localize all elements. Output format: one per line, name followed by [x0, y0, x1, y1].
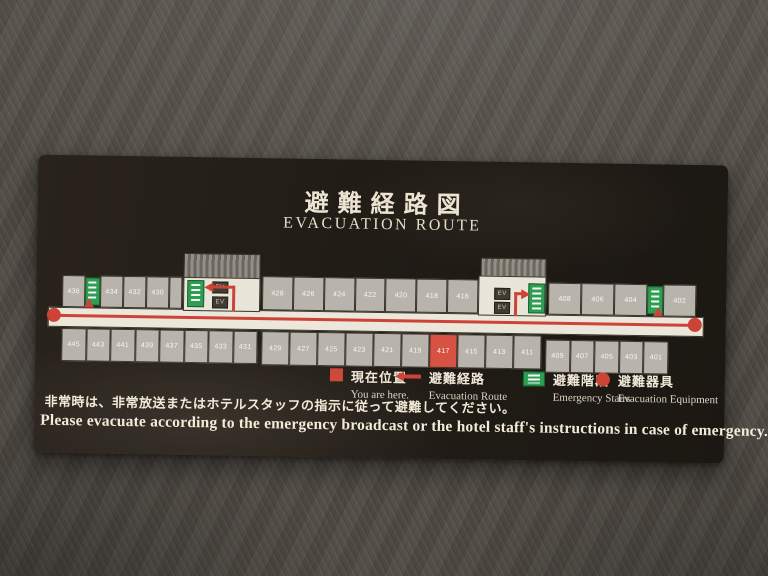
room-432: 432: [123, 276, 146, 308]
room-418: 418: [416, 279, 447, 313]
legend-label-ja: 避難器具: [618, 371, 719, 392]
route-branch-left-horizontal: [212, 285, 234, 288]
room-413: 413: [485, 335, 514, 369]
room-417: 417: [429, 334, 458, 368]
room-430: 430: [146, 276, 169, 308]
room-402: 402: [663, 284, 696, 317]
wall-background: 避難経路図 EVACUATION ROUTE 43643443243042842…: [0, 0, 768, 576]
room-409: 409: [545, 340, 570, 373]
room-406: 406: [581, 283, 614, 316]
room: [169, 277, 183, 309]
evacuation-equipment-icon: [596, 372, 610, 386]
room-405: 405: [594, 340, 619, 373]
room-433: 433: [208, 330, 233, 363]
room-404: 404: [614, 284, 647, 317]
room-423: 423: [345, 332, 374, 366]
room-426: 426: [293, 277, 324, 311]
room-420: 420: [385, 278, 416, 312]
route-arrow-icon: [395, 371, 421, 381]
room-422: 422: [355, 278, 386, 312]
room-419: 419: [401, 333, 430, 367]
legend-label-ja: 避難経路: [429, 368, 508, 388]
emergency-stairs-icon: [528, 283, 545, 313]
route-arrowhead-left: [204, 282, 213, 292]
room-441: 441: [110, 329, 135, 362]
room-424: 424: [324, 277, 355, 311]
room-408: 408: [548, 283, 581, 316]
room-435: 435: [184, 330, 209, 363]
room-421: 421: [373, 333, 402, 367]
elevator-box: EV: [494, 302, 510, 314]
elevator-shaft-roof-left: [183, 253, 260, 279]
room-403: 403: [619, 341, 644, 374]
room-439: 439: [135, 329, 160, 362]
room-445: 445: [61, 328, 86, 361]
emergency-stairs-icon: [187, 280, 204, 307]
room-427: 427: [289, 332, 318, 366]
room-416: 416: [447, 279, 478, 313]
route-arrowhead-right: [521, 289, 530, 299]
current-position-icon: [330, 368, 343, 381]
elevator-box: EV: [494, 288, 510, 300]
room-429: 429: [261, 331, 290, 365]
room-407: 407: [570, 340, 595, 373]
room-431: 431: [233, 331, 258, 364]
room-415: 415: [457, 334, 486, 368]
route-branch-left-vertical: [232, 286, 235, 312]
room-411: 411: [513, 335, 542, 369]
room-434: 434: [100, 276, 123, 308]
route-arrowhead-up-left-stairs: [84, 298, 94, 307]
room-425: 425: [317, 332, 346, 366]
room-401: 401: [643, 341, 668, 374]
room-443: 443: [86, 328, 111, 361]
emergency-stairs-icon: [523, 371, 545, 386]
room-437: 437: [159, 330, 184, 363]
evacuation-route-sign: 避難経路図 EVACUATION ROUTE 43643443243042842…: [34, 155, 729, 464]
elevator-box: EV: [212, 296, 228, 308]
route-branch-right-vertical: [514, 292, 517, 316]
room-428: 428: [262, 276, 293, 310]
route-arrowhead-up-right-stairs: [653, 307, 663, 316]
room-436: 436: [62, 275, 85, 307]
